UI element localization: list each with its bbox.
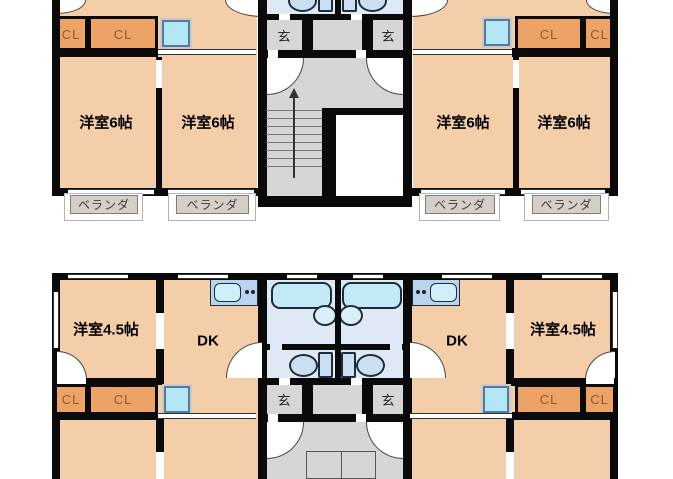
veranda-label-box: ベランダ — [176, 195, 249, 214]
window-icon — [413, 49, 512, 55]
veranda-label-box: ベランダ — [425, 195, 495, 214]
stairwell-void — [336, 115, 403, 196]
room-label: 洋室6帖 — [436, 112, 489, 133]
room-label: 洋室4.5帖 — [73, 319, 139, 340]
washer-pan-icon — [162, 20, 190, 47]
door-gap — [268, 414, 278, 422]
toilet-bowl-icon — [288, 0, 317, 12]
stair-arrow-head-icon — [289, 88, 299, 98]
door-gap — [506, 313, 514, 349]
closet-label: CL — [62, 392, 81, 407]
closet-lower-right-small: CL — [583, 384, 616, 415]
toilet-tank-icon — [342, 0, 357, 12]
window-icon — [353, 274, 383, 279]
veranda-label: ベランダ — [186, 196, 238, 213]
entrance-label: 玄 — [381, 26, 394, 45]
door-gap — [390, 344, 402, 350]
closet-label: CL — [114, 27, 133, 42]
wall — [258, 196, 412, 207]
closet-label: CL — [540, 392, 559, 407]
wall — [52, 0, 60, 196]
wall — [512, 412, 618, 420]
veranda-label-box: ベランダ — [70, 195, 138, 214]
door-gap — [270, 344, 282, 350]
wall-pillar — [362, 385, 373, 414]
window-icon — [68, 274, 128, 279]
entrance-label: 玄 — [277, 390, 290, 409]
washer-pan-icon — [484, 19, 510, 46]
stair-direction-arrow — [293, 96, 295, 178]
veranda-label: ベランダ — [434, 196, 486, 213]
toilet-bowl-icon — [289, 354, 318, 377]
room-label: 洋室6帖 — [79, 112, 132, 133]
washer-pan-icon — [483, 386, 509, 413]
closet-label: CL — [590, 392, 609, 407]
entrance-label: 玄 — [277, 26, 290, 45]
stove-burner-icon — [251, 290, 255, 294]
window-icon — [178, 274, 228, 279]
veranda-label: ベランダ — [78, 196, 130, 213]
wall-pillar — [302, 18, 313, 52]
wall — [52, 48, 158, 57]
door-gap — [506, 452, 514, 479]
wall-pillar — [302, 385, 313, 414]
closet-lower-left-large: CL — [88, 384, 158, 415]
door-gap — [156, 60, 162, 88]
staircase-divider-line — [341, 451, 342, 479]
washer-pan-icon — [164, 386, 190, 413]
closet-label: CL — [540, 27, 559, 42]
wall — [512, 48, 618, 57]
wall-pillar — [362, 18, 373, 52]
door-gap — [156, 313, 164, 349]
door-gap — [279, 378, 290, 385]
closet-label: CL — [114, 392, 133, 407]
room-label: 洋室4.5帖 — [530, 319, 596, 340]
closet-lower-left-small: CL — [54, 384, 88, 415]
closet-label: CL — [62, 27, 81, 42]
room-label: DK — [446, 333, 468, 350]
window-icon — [442, 274, 492, 279]
stove-burner-icon — [416, 290, 420, 294]
door-gap — [513, 60, 519, 88]
kitchen-sink-icon — [430, 283, 457, 302]
window-icon — [158, 49, 256, 55]
wall — [610, 0, 618, 196]
wall — [52, 412, 158, 420]
entrance-room: 玄 — [266, 18, 302, 52]
washbasin-icon — [313, 305, 337, 326]
stove-burner-icon — [422, 290, 426, 294]
toilet-tank-icon — [341, 352, 356, 378]
door-gap — [356, 50, 366, 58]
toilet-bowl-icon — [358, 0, 387, 12]
closet-label: CL — [590, 27, 609, 42]
stove-burner-icon — [245, 290, 249, 294]
wall — [267, 414, 403, 422]
kitchen-sink-icon — [214, 283, 241, 302]
wall — [52, 273, 618, 280]
toilet-tank-icon — [318, 0, 333, 12]
entrance-room: 玄 — [373, 385, 403, 413]
room-label: 洋室6帖 — [537, 112, 590, 133]
entrance-label: 玄 — [381, 390, 394, 409]
room-label: 洋室6帖 — [181, 112, 234, 133]
wall — [267, 344, 404, 350]
window-icon — [410, 413, 512, 419]
room-label: DK — [197, 333, 219, 350]
door-gap — [156, 452, 164, 479]
window-icon — [287, 274, 317, 279]
window-icon — [53, 292, 59, 348]
closet-lower-right-large: CL — [515, 384, 583, 415]
window-icon — [612, 292, 618, 348]
closet-upper-right-large: CL — [515, 16, 583, 52]
door-gap — [356, 414, 366, 422]
closet-upper-left-large: CL — [88, 16, 158, 52]
floor-plan-canvas: CL CL CL CL 玄 玄 洋室6帖 洋室6帖 洋室 — [0, 0, 673, 479]
veranda-label: ベランダ — [540, 196, 592, 213]
door-gap — [351, 14, 362, 20]
entrance-room: 玄 — [266, 385, 302, 413]
toilet-bowl-icon — [356, 354, 385, 377]
toilet-tank-icon — [318, 352, 333, 378]
door-gap — [351, 378, 362, 385]
wall — [403, 0, 412, 207]
entrance-room: 玄 — [373, 18, 403, 52]
veranda-label-box: ベランダ — [532, 195, 601, 214]
window-icon — [542, 274, 602, 279]
window-icon — [158, 413, 256, 419]
washbasin-icon — [339, 305, 363, 326]
